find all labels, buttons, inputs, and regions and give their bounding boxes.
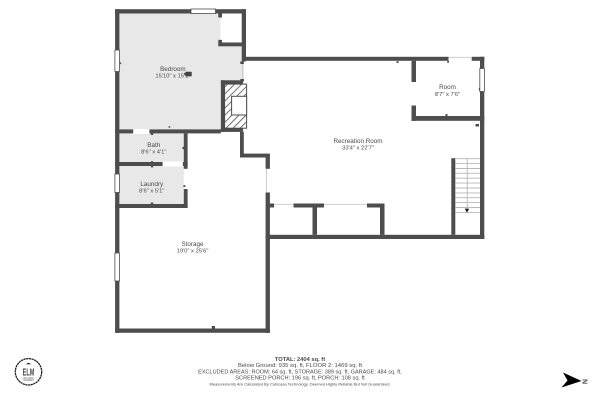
svg-text:Measurements Are Calculated By: Measurements Are Calculated By Cubicasa … bbox=[209, 382, 390, 387]
svg-text:Recreation Room: Recreation Room bbox=[334, 138, 383, 145]
svg-text:Laundry: Laundry bbox=[140, 181, 164, 188]
svg-text:Storage: Storage bbox=[181, 241, 204, 248]
svg-text:33'4" x 22'7": 33'4" x 22'7" bbox=[342, 146, 374, 152]
svg-text:8'6" x 4'1": 8'6" x 4'1" bbox=[141, 150, 166, 156]
svg-text:19'0" x 25'6": 19'0" x 25'6" bbox=[177, 248, 209, 254]
svg-text:SCREENED PORCH: 196 sq. ft, PO: SCREENED PORCH: 196 sq. ft, PORCH: 108 s… bbox=[235, 375, 365, 381]
svg-text:15'10" x 15'1": 15'10" x 15'1" bbox=[155, 74, 190, 80]
svg-text:Room: Room bbox=[439, 84, 456, 91]
svg-text:MANAGEMENT: MANAGEMENT bbox=[23, 379, 34, 383]
svg-text:Bedroom: Bedroom bbox=[160, 66, 186, 73]
svg-text:8'7" x 7'6": 8'7" x 7'6" bbox=[435, 92, 460, 98]
svg-text:ELM: ELM bbox=[23, 367, 35, 378]
svg-text:8'6" x 5'1": 8'6" x 5'1" bbox=[139, 188, 164, 194]
svg-text:Below Ground: 935 sq. ft, FLOO: Below Ground: 935 sq. ft, FLOOR 2: 1469 … bbox=[238, 363, 362, 369]
svg-text:Bath: Bath bbox=[147, 142, 160, 149]
svg-text:N: N bbox=[581, 379, 588, 384]
